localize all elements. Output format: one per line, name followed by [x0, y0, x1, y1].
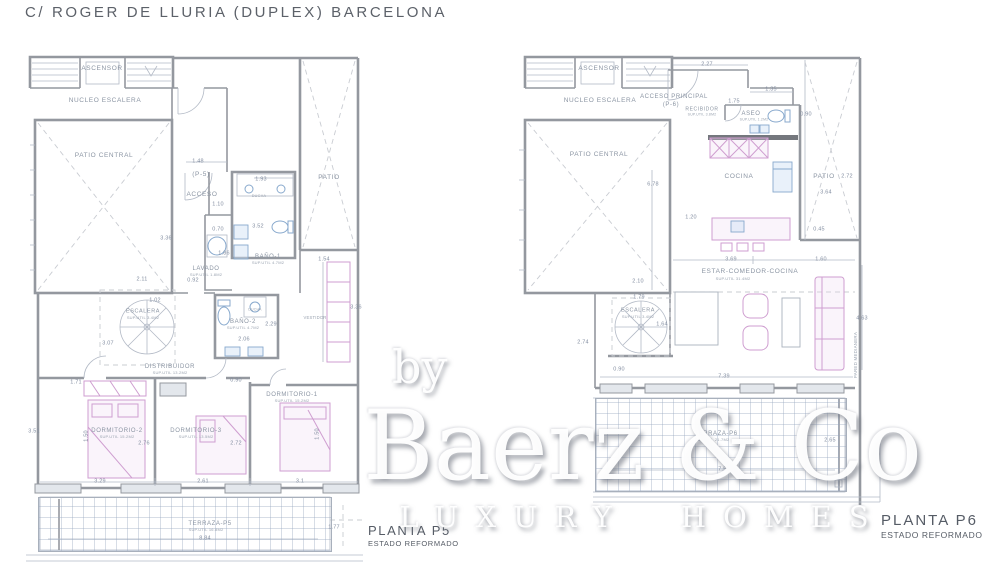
caption-planta-p6: PLANTA P6 ESTADO REFORMADO: [881, 512, 983, 540]
plan-p6-title: PLANTA P6: [881, 512, 983, 529]
plan-p5-title: PLANTA P5: [368, 523, 459, 538]
floorplan-sheet: C/ ROGER DE LLURIA (DUPLEX) BARCELONA: [0, 0, 1000, 573]
terrace-p6-tiles: [595, 398, 847, 492]
plan-p5-drawing: [18, 50, 368, 562]
sheet-title: C/ ROGER DE LLURIA (DUPLEX) BARCELONA: [25, 4, 447, 21]
caption-planta-p5: PLANTA P5 ESTADO REFORMADO: [368, 523, 459, 548]
plan-p5-subtitle: ESTADO REFORMADO: [368, 539, 459, 548]
terrace-p5-tiles: [38, 497, 332, 552]
plan-p6-subtitle: ESTADO REFORMADO: [881, 530, 983, 540]
watermark-by: by: [392, 340, 447, 394]
